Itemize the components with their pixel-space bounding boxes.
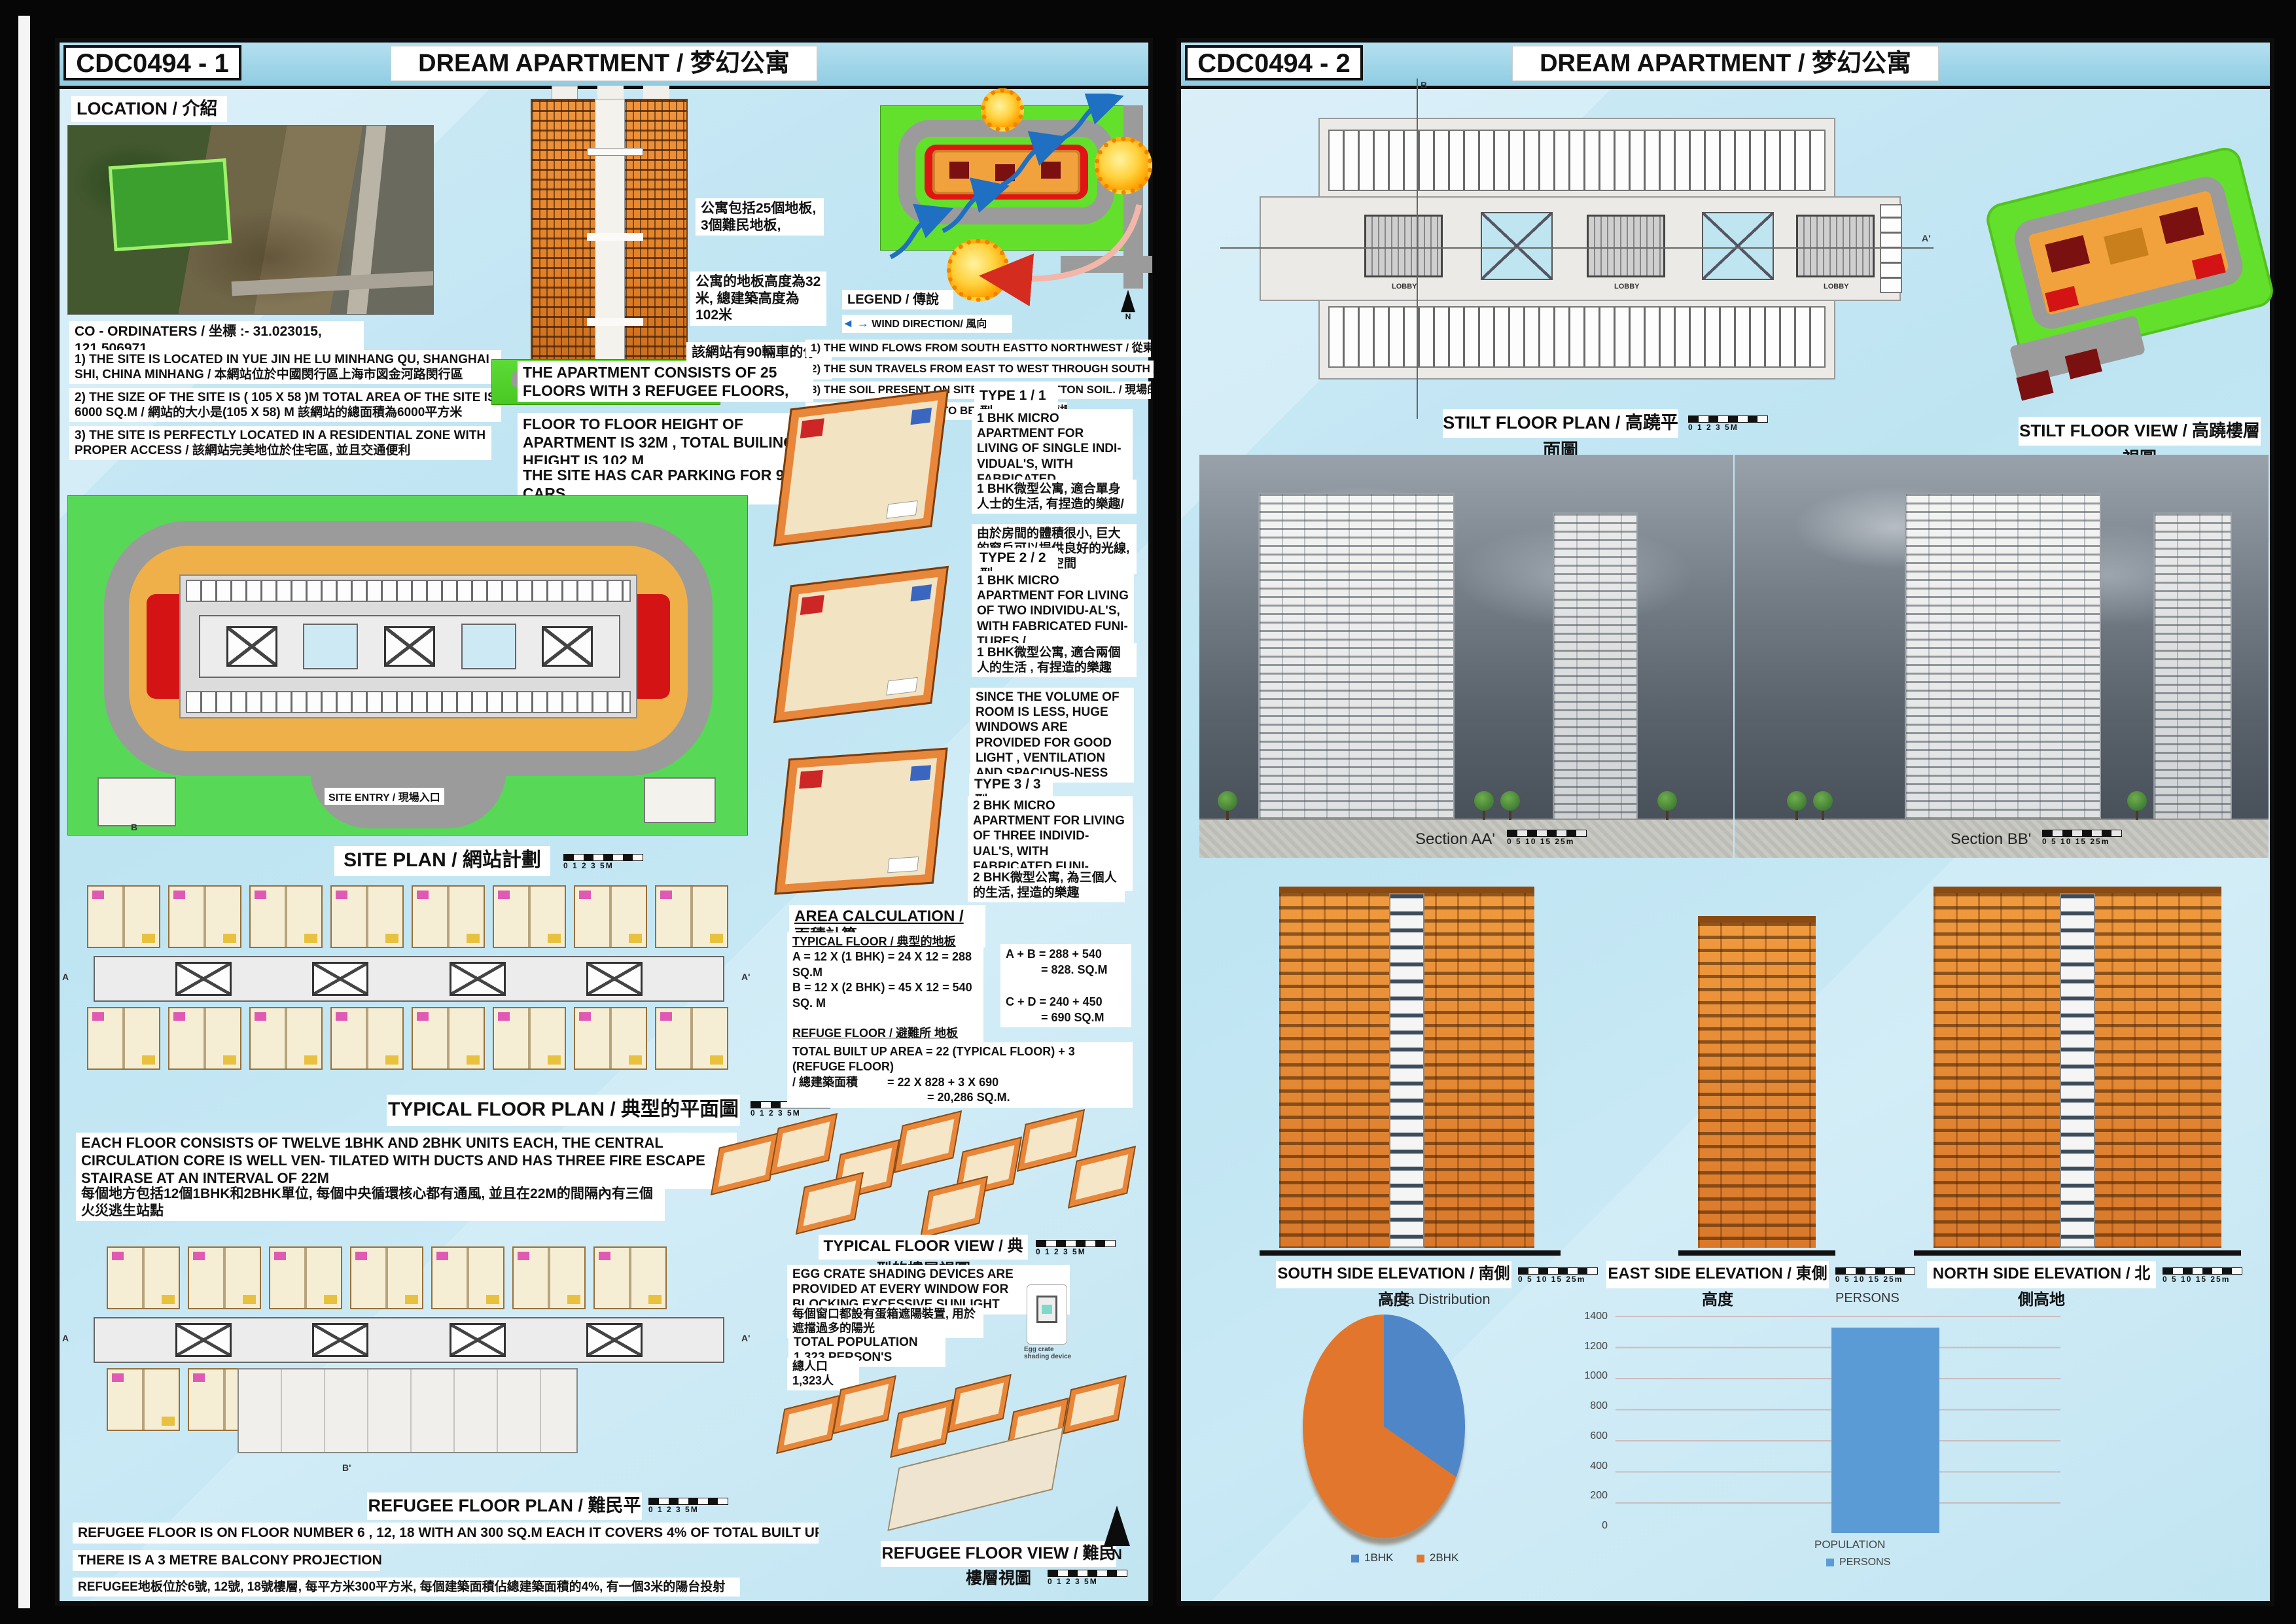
site-note-2: 2) THE SIZE OF THE SITE IS ( 105 X 58 )M… [69, 388, 501, 422]
iso-block [796, 1172, 864, 1235]
section-bb-label: Section BB' [1951, 830, 2031, 849]
unit-module [249, 1007, 323, 1070]
stilt-plan-caption: STILT FLOOR PLAN / 高蹺平面圖 [1443, 409, 1678, 438]
typical-spine [94, 956, 724, 1002]
iso-block [1063, 1375, 1127, 1434]
stair-core [312, 1323, 368, 1357]
site-plan-scalebar: 0 1 2 3 5M [563, 854, 643, 870]
panel2-header: CDC0494 - 2 DREAM APARTMENT / 梦幻公寓 [1181, 43, 2270, 89]
fact-cn-floors: 公寓包括25個地板, 3個難民地板, [696, 198, 824, 236]
grid-label-a: A [62, 972, 69, 982]
south-elevation-caption: SOUTH SIDE ELEVATION / 南側高度 [1276, 1261, 1511, 1288]
section-line-aa [1220, 247, 1934, 249]
east-elevation-scalebar: 0 5 10 15 25m [1835, 1267, 1915, 1284]
north-elevation-drawing [1934, 887, 2221, 1248]
calc-line-a: A = 12 X (1 BHK) = 24 X 12 = 288 SQ.M [792, 950, 972, 978]
siteplan-outbuilding-left [97, 777, 176, 826]
stair-core [312, 962, 368, 996]
total-line-3: = 22 X 828 + 3 X 690 [861, 1076, 998, 1089]
pie-legend: 1BHK 2BHK [1351, 1551, 1458, 1564]
panel2-title: DREAM APARTMENT / 梦幻公寓 [1513, 46, 1938, 80]
iso-block [1017, 1109, 1085, 1172]
section-tower-partial [2153, 512, 2232, 820]
panel2-code: CDC0494 - 2 [1185, 45, 1363, 80]
area-calc-total: TOTAL BUILT UP AREA = 22 (TYPICAL FLOOR)… [787, 1042, 1133, 1108]
east-elevation-drawing [1698, 916, 1816, 1248]
stilt-parking-bottom [1328, 306, 1826, 368]
court [303, 624, 358, 669]
stair-core [384, 626, 435, 667]
grid-label-a2: A' [1922, 233, 1930, 243]
legend-label: LEGEND / 傳說 [842, 290, 953, 309]
court [461, 624, 516, 669]
iso-block [920, 1176, 988, 1239]
unit-module [655, 1007, 728, 1070]
legend-label-2bhk: 2BHK [1430, 1551, 1458, 1564]
panel1-header: CDC0494 - 1 DREAM APARTMENT / 梦幻公寓 [60, 43, 1148, 89]
east-elevation-baseline [1678, 1250, 1835, 1256]
stilt-plan-scalebar: 0 1 2 3 5M [1688, 415, 1768, 432]
refugee-spine [94, 1317, 724, 1363]
sheet-edge [18, 16, 30, 1608]
compass-icon: N [1104, 1506, 1130, 1563]
stair-core [542, 626, 593, 667]
refugee-view-scalebar: 0 1 2 3 5M [1048, 1570, 1127, 1586]
stilt-core-2 [1587, 215, 1665, 277]
ytick: 1400 [1574, 1311, 1608, 1322]
type2-3d-view [769, 569, 953, 720]
unit-module [107, 1368, 180, 1431]
section-aa-scalebar: 0 5 10 15 25m [1507, 830, 1587, 846]
refugee-note-1: REFUGEE FLOOR IS ON FLOOR NUMBER 6 , 12,… [73, 1523, 819, 1544]
unit-module [269, 1246, 342, 1309]
east-elevation-caption: EAST SIDE ELEVATION / 東側高度 [1606, 1261, 1829, 1288]
bar-ylabels: 0 200 400 600 800 1000 1200 1400 [1574, 1311, 1608, 1532]
wind-arrow-icon: ◄ → [842, 317, 869, 330]
tree-icon [1218, 791, 1237, 820]
stilt-core-3 [1796, 215, 1875, 277]
total-line-1: TOTAL BUILT UP AREA = 22 (TYPICAL FLOOR)… [792, 1045, 1075, 1073]
lobby-label-1: LOBBY [1392, 283, 1417, 291]
total-line-2: / 總建築面積 [792, 1076, 858, 1089]
ytick: 1000 [1574, 1370, 1608, 1382]
north-elevation-caption: NORTH SIDE ELEVATION / 北側高地 [1927, 1261, 2156, 1288]
bar-xlabel: POPULATION [1814, 1538, 1885, 1551]
each-floor-note-en: EACH FLOOR CONSISTS OF TWELVE 1BHK AND 2… [76, 1133, 737, 1189]
type2-en: 1 BHK MICRO APARTMENT FOR LIVING OF TWO … [972, 571, 1134, 651]
iso-block [769, 1113, 838, 1176]
ytick: 800 [1574, 1400, 1608, 1412]
section-aa-render: Section AA' 0 5 10 15 25m [1199, 455, 1733, 858]
tree-icon [1657, 791, 1677, 820]
stair-core [175, 962, 232, 996]
refugee-floor-plan-drawing: A A' B' [67, 1246, 751, 1489]
type3-3d-view [769, 746, 953, 896]
typical-floor-label: TYPICAL FLOOR / 典型的地板 [792, 935, 956, 948]
unit-module [593, 1246, 667, 1309]
siteplan-outbuilding-right [644, 777, 716, 823]
sum-ab-2: = 828. SQ.M [1006, 963, 1108, 976]
typical-view-caption: TYPICAL FLOOR VIEW / 典型的樓層視圖 [819, 1235, 1028, 1260]
unit-module [188, 1246, 261, 1309]
stilt-floor-plan-drawing: LOBBY LOBBY LOBBY B A' [1220, 98, 1934, 399]
site-entry-label: SITE ENTRY / 現場入口 [325, 788, 444, 805]
unit-module [107, 1246, 180, 1309]
grid-label-a2: A' [741, 1333, 750, 1343]
tower-core-stripe [595, 99, 625, 361]
site-note-3: 3) THE SITE IS PERFECTLY LOCATED IN A RE… [69, 426, 491, 460]
unit-module [574, 885, 647, 948]
typical-floor-plan-drawing: A A' [67, 885, 751, 1082]
elevation-core-stripe [1389, 893, 1424, 1248]
section-line-b [1417, 79, 1418, 419]
legend-swatch-1bhk [1351, 1555, 1359, 1562]
unit-module [330, 885, 404, 948]
type3-cn: 2 BHK微型公寓, 為三個人的生活, 捏造的樂趣 [968, 868, 1125, 902]
south-elevation-scalebar: 0 5 10 15 25m [1518, 1267, 1598, 1284]
road-on-satellite-2 [232, 271, 434, 296]
unit-module [412, 885, 485, 948]
ytick: 600 [1574, 1430, 1608, 1442]
iso-block [711, 1133, 779, 1195]
type1-3d-view [769, 393, 953, 543]
refugee-note-2: THERE IS A 3 METRE BALCONY PROJECTION [73, 1550, 380, 1571]
stilt-floor-view-3d [1992, 115, 2274, 409]
refugee-units-top [107, 1246, 667, 1309]
panel1-title: DREAM APARTMENT / 梦幻公寓 [391, 46, 817, 80]
grid-label-b: B [1421, 80, 1427, 90]
section-bb-render: Section BB' 0 5 10 15 25m [1735, 455, 2269, 858]
refuge-floor-label: REFUGE FLOOR / 避難所 地板 [792, 1027, 958, 1040]
legend-label-1bhk: 1BHK [1364, 1551, 1393, 1564]
tree-icon [1474, 791, 1494, 820]
type2-extra: SINCE THE VOLUME OF ROOM IS LESS, HUGE W… [970, 688, 1134, 783]
north-label: N [1104, 1546, 1130, 1563]
bar-chart-persons: PERSONS 0 200 400 600 800 1000 1200 1400… [1574, 1291, 2071, 1579]
stilt-view-caption: STILT FLOOR VIEW / 高蹺樓層視圖 [2019, 417, 2261, 446]
lobby-label-2: LOBBY [1614, 283, 1640, 291]
satellite-image [67, 125, 434, 315]
wind-direction-row: ◄ → WIND DIRECTION/ 風向 [842, 315, 1012, 333]
compass-icon-small: N [1121, 290, 1135, 321]
unit-module [330, 1007, 404, 1070]
refugee-plan-caption: REFUGEE FLOOR PLAN / 難民平面圖 [367, 1492, 642, 1520]
legend-swatch-persons [1826, 1559, 1834, 1566]
bar-population [1831, 1328, 1939, 1533]
north-elevation-scalebar: 0 5 10 15 25m [2163, 1267, 2242, 1284]
iso-block [1068, 1146, 1136, 1209]
wind-direction-label: WIND DIRECTION/ 風向 [872, 319, 987, 330]
section-tower [1905, 493, 2101, 820]
unit-module [493, 1007, 566, 1070]
each-floor-note-cn: 每個地方包括12個1BHK和2BHK單位, 每個中央循環核心都有通風, 並且在2… [76, 1184, 665, 1221]
typical-view-scalebar: 0 1 2 3 5M [1036, 1240, 1116, 1256]
section-bb-scalebar: 0 5 10 15 25m [2042, 830, 2122, 846]
ytick: 0 [1574, 1520, 1608, 1532]
stilt-court-2 [1702, 212, 1774, 280]
unit-module [249, 885, 323, 948]
location-label: LOCATION / 介紹 [71, 96, 227, 122]
legend-swatch-2bhk [1417, 1555, 1424, 1562]
tower-roof-tabs [552, 86, 578, 100]
refugee-note-3: REFUGEE地板位於6號, 12號, 18號樓層, 每平方米300平方米, 每… [73, 1578, 740, 1597]
refugee-plan-scalebar: 0 1 2 3 5M [648, 1498, 728, 1514]
bar-title: PERSONS [1835, 1291, 1899, 1306]
unit-module [493, 885, 566, 948]
stair-core [175, 1323, 232, 1357]
sum-cd-1: C + D = 240 + 450 [1006, 995, 1103, 1008]
pie-chart-area-distribution: Area Distribution 1BHK 2BHK [1273, 1291, 1574, 1579]
legend-note-1: 1) THE WIND FLOWS FROM SOUTH EASTTO NORT… [805, 340, 1151, 357]
tree-icon [1813, 791, 1833, 820]
south-elevation-baseline [1260, 1250, 1561, 1256]
refugee-floor-view-3d [773, 1377, 1139, 1534]
unit-module [87, 885, 160, 948]
iso-block [832, 1375, 896, 1434]
stilt-court-1 [1481, 212, 1553, 280]
grid-label-a2: A' [741, 972, 750, 982]
section-tower-partial [1553, 512, 1638, 820]
stair-core [450, 962, 506, 996]
site-note-1: 1) THE SITE IS LOCATED IN YUE JIN HE LU … [69, 350, 501, 384]
iso-block [890, 1399, 954, 1458]
typical-units-bottom [87, 1007, 728, 1070]
site-boundary-highlight [109, 158, 232, 251]
site-plan-caption: SITE PLAN / 網站計劃 [334, 846, 550, 876]
sum-cd-2: = 690 SQ.M [1006, 1011, 1104, 1024]
unit-module [655, 885, 728, 948]
siteplan-spine [199, 615, 620, 678]
egg-crate-device-icon [1027, 1284, 1067, 1345]
stair-core [586, 1323, 643, 1357]
refugee-balcony-slab [238, 1368, 578, 1453]
unit-module [512, 1246, 586, 1309]
bar-plot [1616, 1316, 2060, 1533]
unit-module [87, 1007, 160, 1070]
panel-2: CDC0494 - 2 DREAM APARTMENT / 梦幻公寓 LOBBY… [1176, 38, 2274, 1606]
unit-module [574, 1007, 647, 1070]
ytick: 200 [1574, 1490, 1608, 1502]
pie-graphic [1303, 1315, 1465, 1538]
fact-cn-height: 公寓的地板高度為32米, 總建築高度為102米 [690, 272, 826, 326]
unit-module [431, 1246, 504, 1309]
elevation-core-stripe [2060, 893, 2095, 1248]
stilt-core-1 [1364, 215, 1443, 277]
sum-ab-1: A + B = 288 + 540 [1006, 947, 1102, 961]
stair-core [586, 962, 643, 996]
siteplan-parking-bottom [186, 691, 631, 713]
iso-block [776, 1395, 840, 1454]
iso-block [894, 1110, 962, 1173]
stilt-parking-top [1328, 130, 1826, 191]
siteplan-parking-top [186, 580, 631, 602]
tree-icon [1500, 791, 1520, 820]
unit-module [412, 1007, 485, 1070]
area-calc-sums: A + B = 288 + 540 = 828. SQ.M C + D = 24… [1000, 944, 1131, 1027]
legend-note-2: 2) THE SUN TRAVELS FROM EAST TO WEST THR… [805, 361, 1154, 378]
lobby-label-3: LOBBY [1824, 283, 1849, 291]
north-elevation-baseline [1914, 1250, 2241, 1256]
calc-line-b: B = 12 X (2 BHK) = 45 X 12 = 540 SQ. M [792, 981, 972, 1009]
ytick: 400 [1574, 1460, 1608, 1472]
south-elevation-drawing [1279, 887, 1534, 1248]
stair-core [450, 1323, 506, 1357]
typical-plan-caption: TYPICAL FLOOR PLAN / 典型的平面圖 [387, 1095, 740, 1126]
type2-cn: 1 BHK微型公寓, 適合兩個人的生活 , 有捏造的樂趣 [972, 643, 1137, 677]
grid-label-a: A [62, 1333, 69, 1343]
typical-units-top [87, 885, 728, 948]
stilt-parking-right [1880, 204, 1902, 293]
panel1-code: CDC0494 - 1 [63, 45, 241, 80]
type1-cn: 1 BHK微型公寓, 適合單身人士的生活, 有捏造的樂趣/ [972, 480, 1137, 514]
bar-legend: PERSONS [1826, 1557, 1890, 1568]
stair-core [226, 626, 277, 667]
unit-module [168, 885, 241, 948]
section-aa-label: Section AA' [1415, 830, 1495, 849]
tree-icon [1787, 791, 1807, 820]
site-plan-drawing: SITE ENTRY / 現場入口 B [67, 495, 748, 836]
legend-label-persons: PERSONS [1839, 1557, 1890, 1568]
typical-floor-view-3d [701, 1103, 1146, 1233]
panel-1: CDC0494 - 1 DREAM APARTMENT / 梦幻公寓 LOCAT… [55, 38, 1153, 1606]
egg-crate-device-label: Egg crate shading device [1024, 1346, 1076, 1360]
grid-label-b: B [131, 822, 137, 832]
refugee-view-caption: REFUGEE FLOOR VIEW / 難民樓層視圖 [881, 1541, 1116, 1567]
section-tower [1258, 493, 1455, 820]
tower-balconies [587, 148, 643, 156]
tree-icon [2127, 791, 2147, 820]
grid-label-b2: B' [342, 1462, 351, 1473]
unit-module [350, 1246, 423, 1309]
pie-title: Area Distribution [1384, 1291, 1491, 1308]
ytick: 1200 [1574, 1341, 1608, 1352]
iso-block [947, 1374, 1012, 1433]
unit-module [168, 1007, 241, 1070]
